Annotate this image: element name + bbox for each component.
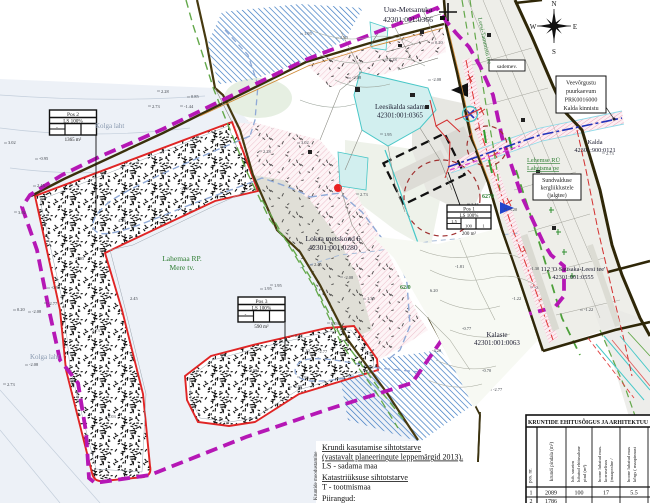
svg-text:-0.77: -0.77 <box>462 326 472 331</box>
svg-text:1365 m²: 1365 m² <box>65 137 82 143</box>
svg-text:KRUNTIDE EHITUSÕIGUS JA ARHITE: KRUNTIDE EHITUSÕIGUS JA ARHITEKTUU <box>528 418 648 426</box>
svg-text:-2.08: -2.08 <box>248 368 258 373</box>
svg-text:1.95: 1.95 <box>264 286 272 291</box>
svg-text:-2.08: -2.08 <box>29 362 39 367</box>
svg-text:42301:900:0121: 42301:900:0121 <box>574 147 615 154</box>
svg-text:korruselisus: korruselisus <box>603 460 608 482</box>
svg-text:-2.77: -2.77 <box>48 301 58 306</box>
svg-text:-2.77: -2.77 <box>493 387 503 392</box>
svg-text:2.73: 2.73 <box>7 382 15 387</box>
svg-text:Lehemse RÜ: Lehemse RÜ <box>527 157 561 164</box>
svg-text:Kalda kinnistu: Kalda kinnistu <box>563 106 598 112</box>
svg-text:Veevõrgustu: Veevõrgustu <box>566 81 596 87</box>
svg-text:2: 2 <box>530 499 533 503</box>
svg-text:(jalgtee): (jalgtee) <box>547 192 566 199</box>
svg-text:2.73: 2.73 <box>92 328 100 333</box>
svg-text:pos. nr.: pos. nr. <box>529 468 534 483</box>
svg-text:2.45: 2.45 <box>295 333 303 338</box>
svg-text:2.73: 2.73 <box>360 192 368 197</box>
svg-text:Pos 1: Pos 1 <box>463 207 475 213</box>
svg-text:100: 100 <box>465 224 473 229</box>
svg-text:Kalda: Kalda <box>587 139 602 146</box>
svg-text:42301:001:0366: 42301:001:0366 <box>383 15 433 24</box>
svg-text:3.02: 3.02 <box>301 140 309 145</box>
svg-text:Leesikalda sadam: Leesikalda sadam <box>375 103 426 111</box>
svg-text:-1.30: -1.30 <box>530 266 540 271</box>
svg-text:hoone lubatud max.: hoone lubatud max. <box>597 446 602 482</box>
svg-text:-0.95: -0.95 <box>51 285 61 290</box>
svg-text:Kalaste: Kalaste <box>487 331 508 339</box>
svg-text:42301:001:0280: 42301:001:0280 <box>308 243 357 252</box>
svg-text:lub. suurim: lub. suurim <box>570 461 575 482</box>
svg-text:42301:001:0555: 42301:001:0555 <box>552 274 593 281</box>
svg-text:Lahetsma pe: Lahetsma pe <box>527 165 559 172</box>
svg-text:8.03: 8.03 <box>108 414 116 419</box>
svg-text:1.95: 1.95 <box>274 283 282 288</box>
svg-text:W: W <box>530 23 537 31</box>
svg-text:-2.77: -2.77 <box>180 186 190 191</box>
svg-text:Katastriüksuse sihtotstarve: Katastriüksuse sihtotstarve <box>322 473 408 482</box>
svg-text:2.45: 2.45 <box>314 262 322 267</box>
svg-text:0.20: 0.20 <box>435 40 443 45</box>
svg-text:1.95: 1.95 <box>304 31 312 36</box>
svg-text:Kruntide moodustamine: Kruntide moodustamine <box>314 451 319 500</box>
svg-text:4.56: 4.56 <box>118 218 126 223</box>
svg-text:-2.08: -2.08 <box>344 275 354 280</box>
svg-text:2089: 2089 <box>545 491 557 497</box>
svg-text:1.30: 1.30 <box>340 35 348 40</box>
svg-text:1: 1 <box>530 491 533 497</box>
svg-text:-2.08: -2.08 <box>352 75 362 80</box>
svg-text:LS 100%: LS 100% <box>460 214 479 219</box>
svg-text:puurkaevum: puurkaevum <box>566 89 596 95</box>
svg-text:-0.95: -0.95 <box>39 156 49 161</box>
svg-text:LS - sadama maa: LS - sadama maa <box>322 462 378 471</box>
svg-text:Piirangud:: Piirangud: <box>322 494 355 503</box>
svg-text:2.45: 2.45 <box>130 296 138 301</box>
svg-text:-0.70: -0.70 <box>482 368 492 373</box>
svg-text:Kolga laht: Kolga laht <box>30 353 59 361</box>
svg-text:62/0: 62/0 <box>400 285 411 291</box>
svg-text:8.03: 8.03 <box>331 321 339 326</box>
svg-text:5.10: 5.10 <box>302 348 310 353</box>
svg-text:T - tootmismaa: T - tootmismaa <box>322 483 371 492</box>
svg-text:hoone lubatud max: hoone lubatud max <box>626 446 631 482</box>
svg-text:lubatud ehitusalune: lubatud ehitusalune <box>576 446 581 482</box>
svg-text:2.73: 2.73 <box>152 104 160 109</box>
svg-text:LS 100%: LS 100% <box>63 119 83 125</box>
svg-text:42301:001:0063: 42301:001:0063 <box>474 339 520 347</box>
svg-text:3.02: 3.02 <box>8 140 16 145</box>
svg-text:-1.22: -1.22 <box>512 296 521 301</box>
svg-text:S: S <box>552 48 556 56</box>
svg-text:E: E <box>573 23 577 31</box>
svg-text:17: 17 <box>603 491 609 497</box>
svg-text:-2.08: -2.08 <box>32 309 42 314</box>
svg-text:Mere tv.: Mere tv. <box>170 263 195 272</box>
svg-text:100: 100 <box>575 491 584 497</box>
svg-text:PRK0016000: PRK0016000 <box>565 98 598 104</box>
svg-text:0.85: 0.85 <box>191 94 199 99</box>
svg-text:0.20: 0.20 <box>17 307 25 312</box>
svg-text:-2.77: -2.77 <box>318 349 328 354</box>
svg-text:Sundvalduse: Sundvalduse <box>542 178 572 184</box>
svg-text:Loksa metskond 6: Loksa metskond 6 <box>306 234 361 243</box>
svg-text:(vastavalt planeeringute leppe: (vastavalt planeeringute leppemärgid 201… <box>322 453 463 462</box>
svg-text:Uue-Metsanuka: Uue-Metsanuka <box>384 5 433 14</box>
svg-text:-1.81: -1.81 <box>455 264 464 269</box>
svg-text:200 m²: 200 m² <box>462 231 477 237</box>
svg-text:Kolga laht: Kolga laht <box>95 122 124 130</box>
svg-text:kõrgs ( maapinnast: kõrgs ( maapinnast <box>632 446 637 482</box>
svg-text:5.5: 5.5 <box>630 491 638 497</box>
svg-text:590 m²: 590 m² <box>254 324 269 330</box>
svg-text:2.45: 2.45 <box>37 183 45 188</box>
svg-text:-4.20: -4.20 <box>432 348 442 353</box>
svg-text:1.95: 1.95 <box>384 132 392 137</box>
svg-text:6.20: 6.20 <box>430 288 438 293</box>
svg-text:(maapealne /: (maapealne / <box>609 458 614 482</box>
svg-text:LS 100%: LS 100% <box>252 306 272 312</box>
svg-text:Pos 3: Pos 3 <box>255 299 267 305</box>
svg-text:1786: 1786 <box>545 499 557 503</box>
svg-text:pind (m²): pind (m²) <box>582 464 587 482</box>
svg-text:Lahemaa RP.: Lahemaa RP. <box>162 254 202 263</box>
svg-text:krundi pindala (m²): krundi pindala (m²) <box>549 442 555 481</box>
svg-text:112 'O Sausaka-Leesi tee': 112 'O Sausaka-Leesi tee' <box>541 266 605 273</box>
svg-text:1.30: 1.30 <box>367 296 375 301</box>
svg-text:1.95: 1.95 <box>301 375 309 380</box>
svg-text:kergliiklustele: kergliiklustele <box>540 186 573 192</box>
svg-text:-2.08: -2.08 <box>293 384 303 389</box>
svg-text:-2.08: -2.08 <box>432 77 442 82</box>
svg-text:-1.22: -1.22 <box>584 307 593 312</box>
svg-text:6270: 6270 <box>482 194 494 200</box>
svg-text:3.02: 3.02 <box>18 210 26 215</box>
svg-text:-1.44: -1.44 <box>184 104 194 109</box>
svg-text:Pos 2: Pos 2 <box>67 112 79 118</box>
svg-text:-0.95: -0.95 <box>75 256 85 261</box>
svg-text:2.28: 2.28 <box>263 149 271 154</box>
svg-text:sademev.: sademev. <box>497 64 518 70</box>
svg-text:42301:001:0365: 42301:001:0365 <box>377 112 423 120</box>
svg-text:-3.20: -3.20 <box>508 207 518 212</box>
svg-text:N: N <box>551 0 556 8</box>
svg-text:2.28: 2.28 <box>161 89 169 94</box>
svg-text:Krundi kasutamise sihtotstarve: Krundi kasutamise sihtotstarve <box>322 443 422 452</box>
